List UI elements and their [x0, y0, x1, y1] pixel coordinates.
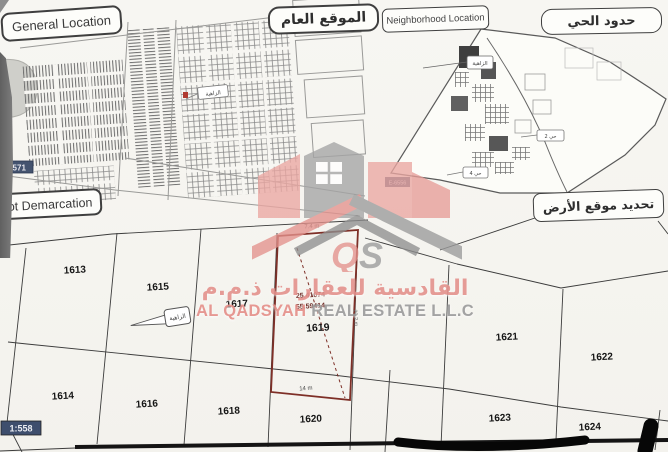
target-dim-side: 20.2 m — [351, 309, 358, 327]
parcel-lines — [0, 218, 668, 452]
neighborhood-map: الزاهية حي 2 حي 4 E-6556 — [375, 12, 668, 212]
target-plot-number: 1619 — [306, 321, 330, 334]
scale-badge: 1:558 — [1, 421, 41, 435]
street-callout: الزاهية — [129, 306, 191, 332]
area-label: الزاهية — [472, 61, 488, 67]
parcel-number: 1614 — [51, 390, 74, 402]
target-dim-bottom: 14 m — [299, 386, 313, 393]
sector-label-2: حي 4 — [469, 171, 481, 177]
sheet-ref: E-6556 — [389, 181, 407, 187]
general-location-title-ar: الموقع العام — [268, 3, 380, 35]
parcel-number: 1615 — [146, 281, 169, 293]
parcel-number: 1617 — [225, 298, 248, 310]
neighborhood-location-title-en: Neighborhood Location — [382, 5, 490, 33]
parcel-number: 1618 — [217, 405, 240, 417]
redaction-marks — [398, 426, 651, 451]
parcel-numbers: 1613 1615 1617 1614 1616 1618 1620 1621 … — [51, 264, 613, 433]
parcel-number: 1613 — [63, 264, 86, 276]
sheet-ref-badge: E-6556 — [385, 177, 410, 187]
parcel-number: 1620 — [299, 413, 322, 425]
parcel-number: 1624 — [578, 421, 601, 433]
plot-demarcation-map: 1613 1615 1617 1614 1616 1618 1620 1621 … — [0, 218, 668, 452]
target-longitude: 55.59414 — [296, 302, 326, 311]
target-location-marker — [183, 92, 188, 98]
plot-location-title-ar: تحديد موقع الأرض — [533, 189, 665, 223]
parcel-number: 1623 — [488, 412, 511, 424]
target-latitude: 25.41074 — [296, 291, 326, 300]
scale-value: 1:558 — [9, 424, 32, 434]
parcel-number: 1616 — [135, 398, 158, 410]
scanned-plot-site-plan: الزاهية 5571 — [0, 0, 668, 452]
neighborhood-boundary — [391, 29, 666, 193]
neighborhood-boundaries-title-ar: حدود الحي — [541, 7, 662, 35]
target-dim-top: 7.4 m — [304, 223, 319, 230]
sector-label-1: حي 2 — [544, 134, 556, 140]
parcel-number: 1621 — [495, 331, 518, 343]
parcel-number: 1622 — [590, 351, 613, 363]
